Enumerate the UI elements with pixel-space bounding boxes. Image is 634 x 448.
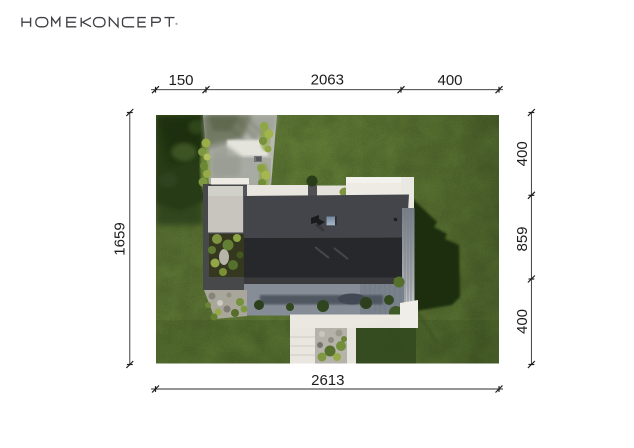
svg-text:2613: 2613 xyxy=(311,372,344,389)
svg-text:2063: 2063 xyxy=(311,72,344,89)
svg-text:400: 400 xyxy=(514,309,531,334)
svg-text:400: 400 xyxy=(514,141,531,166)
svg-text:400: 400 xyxy=(437,72,462,89)
svg-text:150: 150 xyxy=(168,72,193,89)
svg-text:1659: 1659 xyxy=(112,222,129,255)
svg-text:859: 859 xyxy=(514,226,531,251)
